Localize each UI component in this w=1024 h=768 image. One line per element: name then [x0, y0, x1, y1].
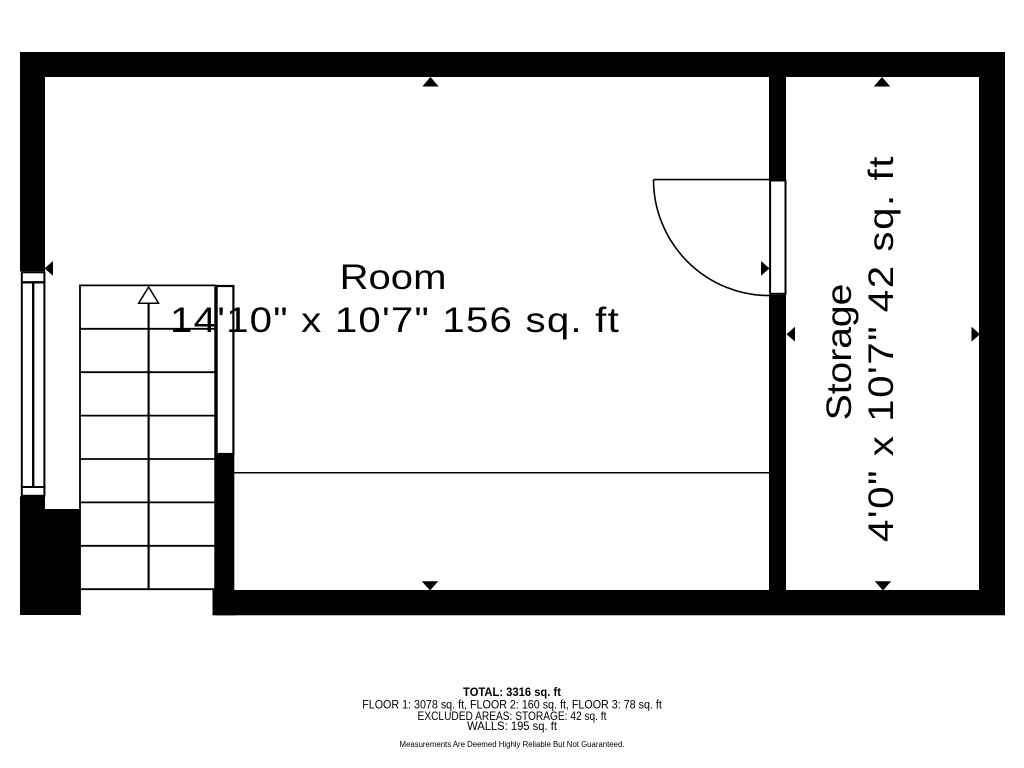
- svg-text:Storage: Storage: [819, 284, 859, 421]
- svg-text:Room: Room: [340, 258, 447, 297]
- svg-text:WALLS: 195 sq. ft: WALLS: 195 sq. ft: [467, 721, 558, 733]
- svg-text:TOTAL: 3316 sq. ft: TOTAL: 3316 sq. ft: [463, 687, 561, 699]
- svg-text:14'10" x 10'7" 156 sq. ft: 14'10" x 10'7" 156 sq. ft: [170, 300, 620, 339]
- svg-text:4'0" x 10'7" 42 sq. ft: 4'0" x 10'7" 42 sq. ft: [861, 155, 900, 542]
- svg-text:Measurements Are Deemed Highly: Measurements Are Deemed Highly Reliable …: [400, 740, 625, 749]
